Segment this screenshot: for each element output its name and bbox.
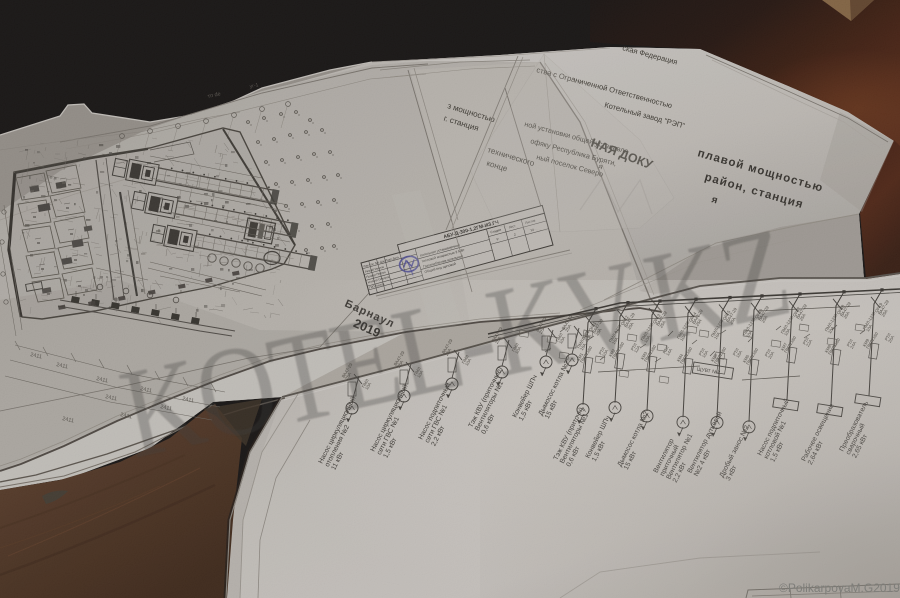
svg-text:©PolikarpovaM.G2019: ©PolikarpovaM.G2019 (779, 581, 900, 595)
